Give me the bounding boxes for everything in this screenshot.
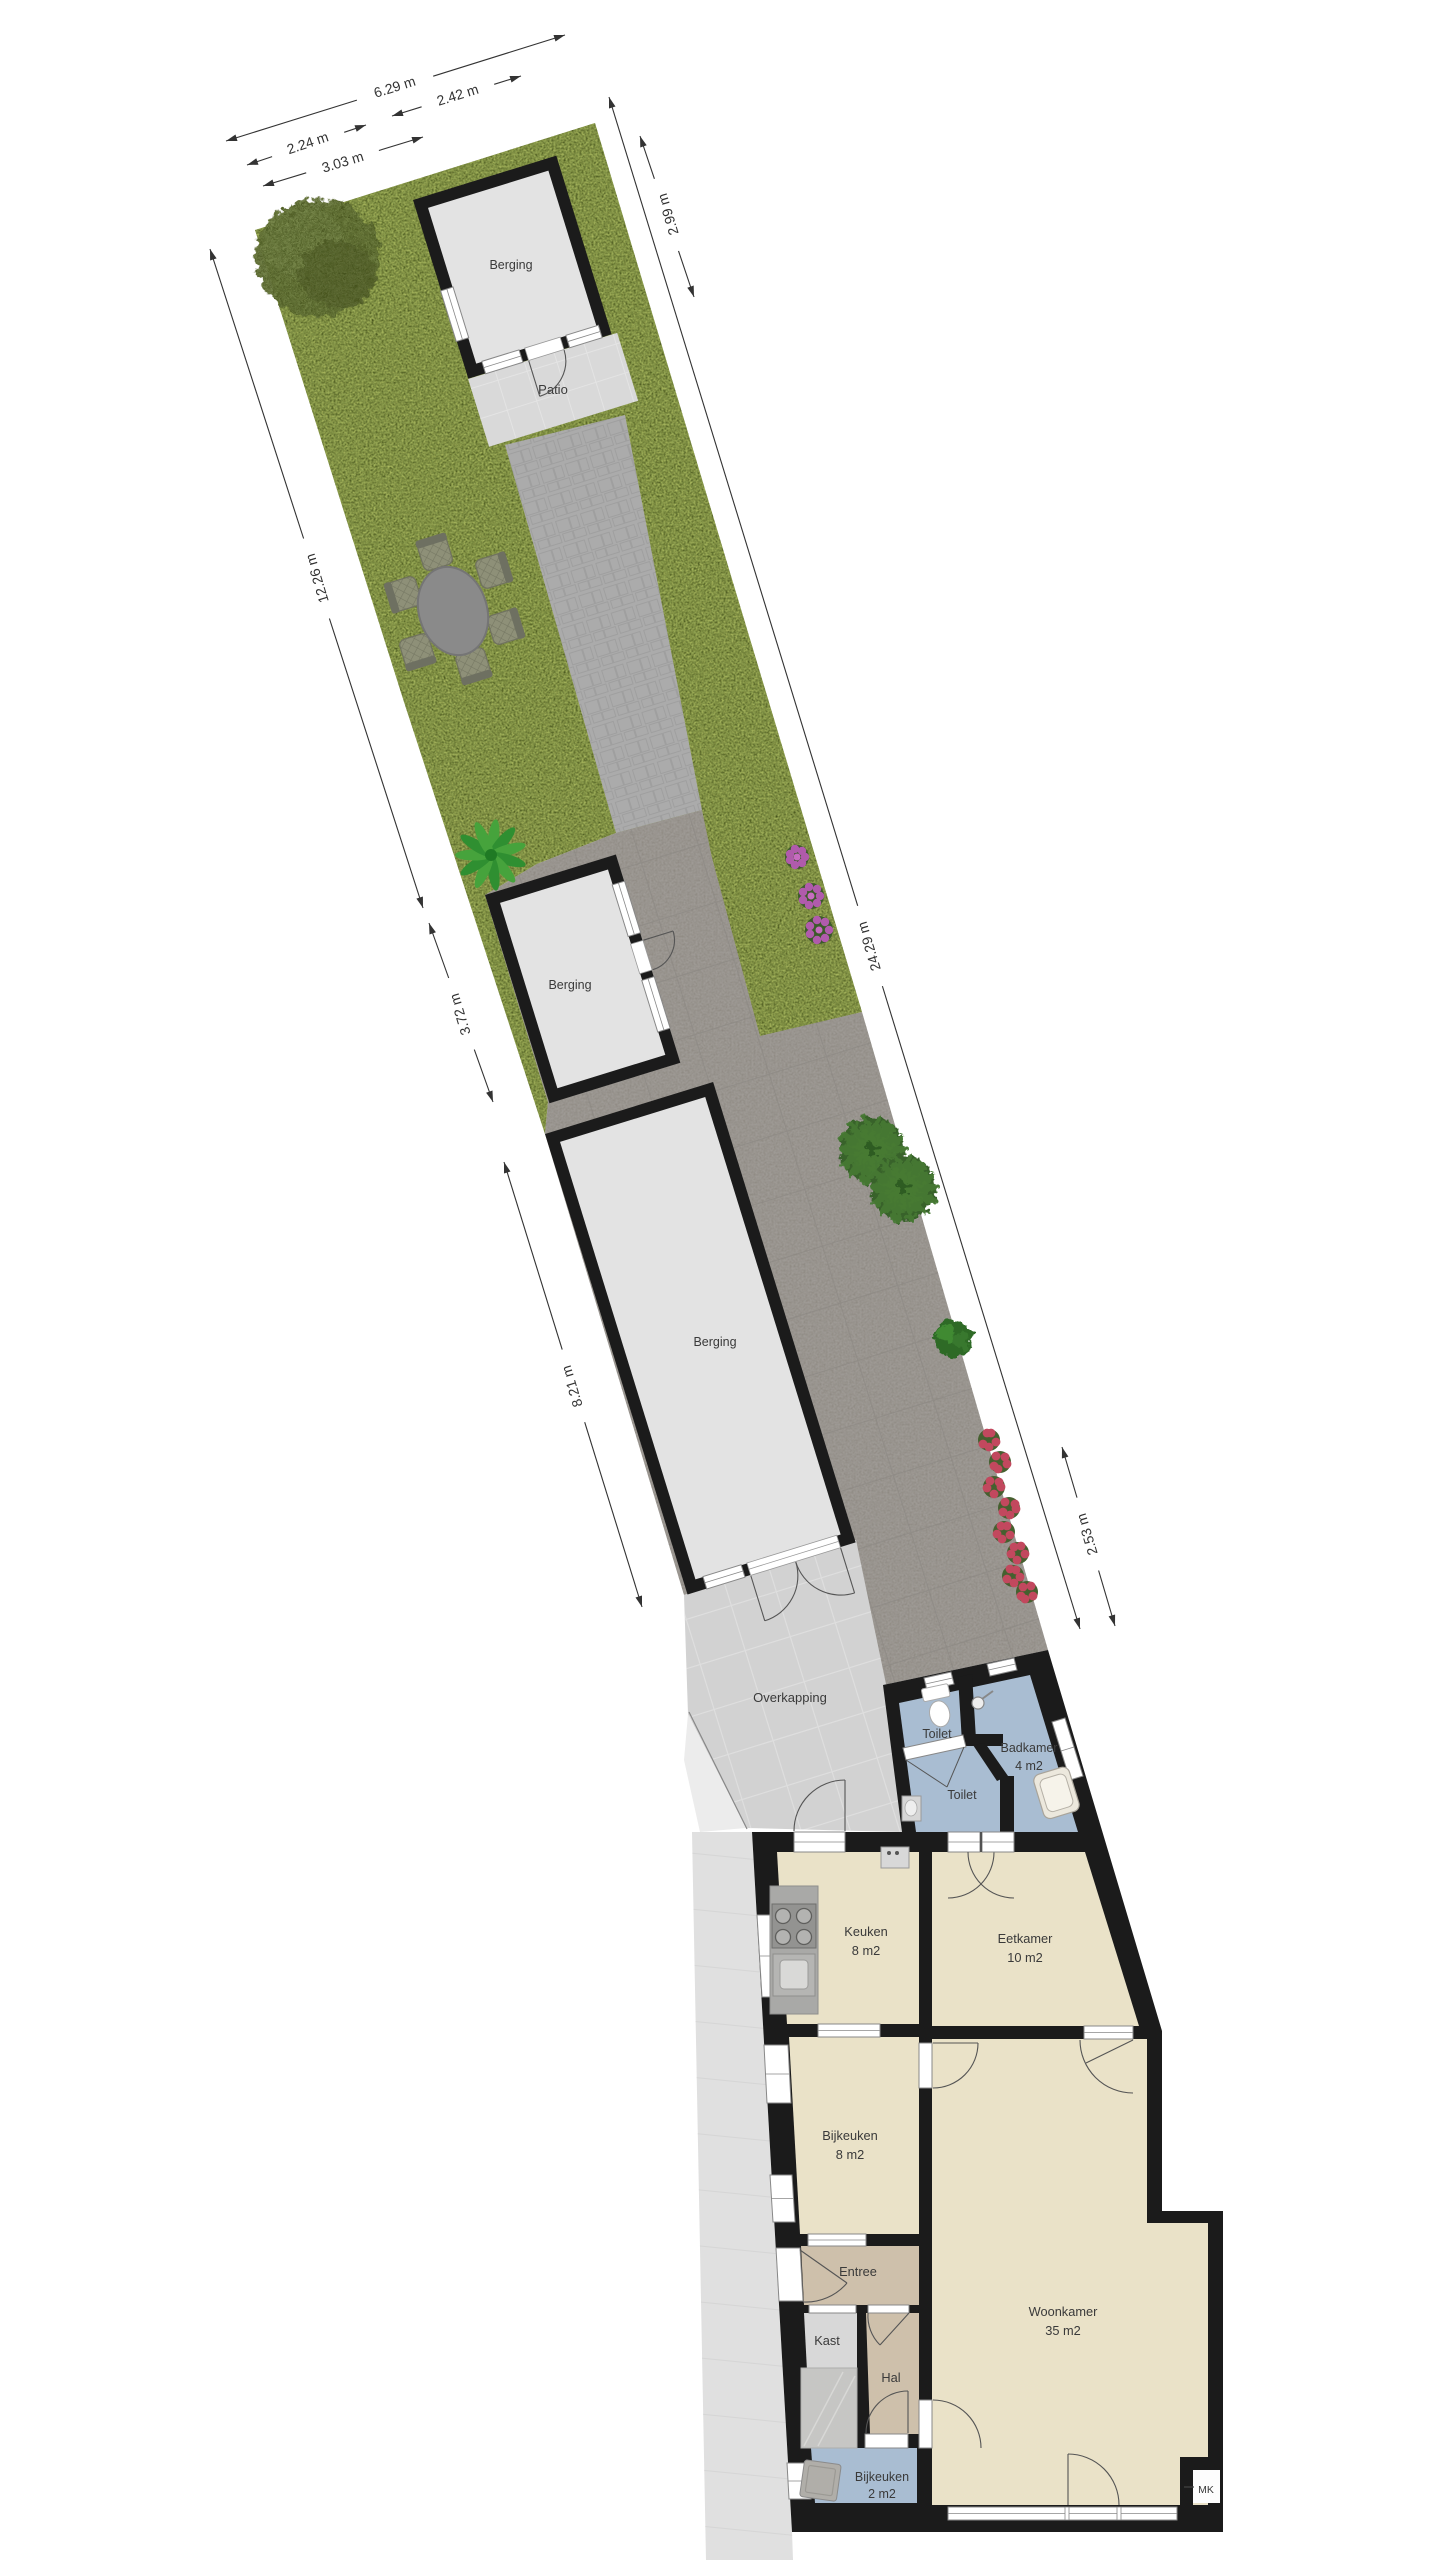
svg-text:Toilet: Toilet [922, 1727, 952, 1741]
svg-text:Hal: Hal [881, 2370, 900, 2385]
svg-text:Kast: Kast [814, 2333, 840, 2348]
svg-text:Badkamer: Badkamer [1001, 1741, 1058, 1755]
svg-text:Keuken: Keuken [844, 1924, 887, 1939]
svg-text:Berging: Berging [548, 978, 591, 992]
svg-text:Bijkeuken: Bijkeuken [855, 2470, 909, 2484]
svg-text:Bijkeuken: Bijkeuken [822, 2128, 878, 2143]
svg-text:Entree: Entree [839, 2264, 877, 2279]
svg-text:10 m2: 10 m2 [1007, 1950, 1043, 1965]
svg-text:2 m2: 2 m2 [868, 2487, 896, 2501]
svg-text:Woonkamer: Woonkamer [1029, 2304, 1098, 2319]
svg-text:Berging: Berging [693, 1335, 736, 1349]
svg-text:Overkapping: Overkapping [753, 1690, 827, 1705]
svg-text:Eetkamer: Eetkamer [998, 1931, 1054, 1946]
svg-text:4 m2: 4 m2 [1015, 1759, 1043, 1773]
svg-text:8 m2: 8 m2 [836, 2147, 864, 2162]
svg-text:MK: MK [1198, 2484, 1214, 2496]
svg-text:8 m2: 8 m2 [852, 1943, 880, 1958]
svg-text:Toilet: Toilet [947, 1788, 977, 1802]
svg-text:35 m2: 35 m2 [1045, 2323, 1081, 2338]
svg-text:Berging: Berging [489, 258, 532, 272]
